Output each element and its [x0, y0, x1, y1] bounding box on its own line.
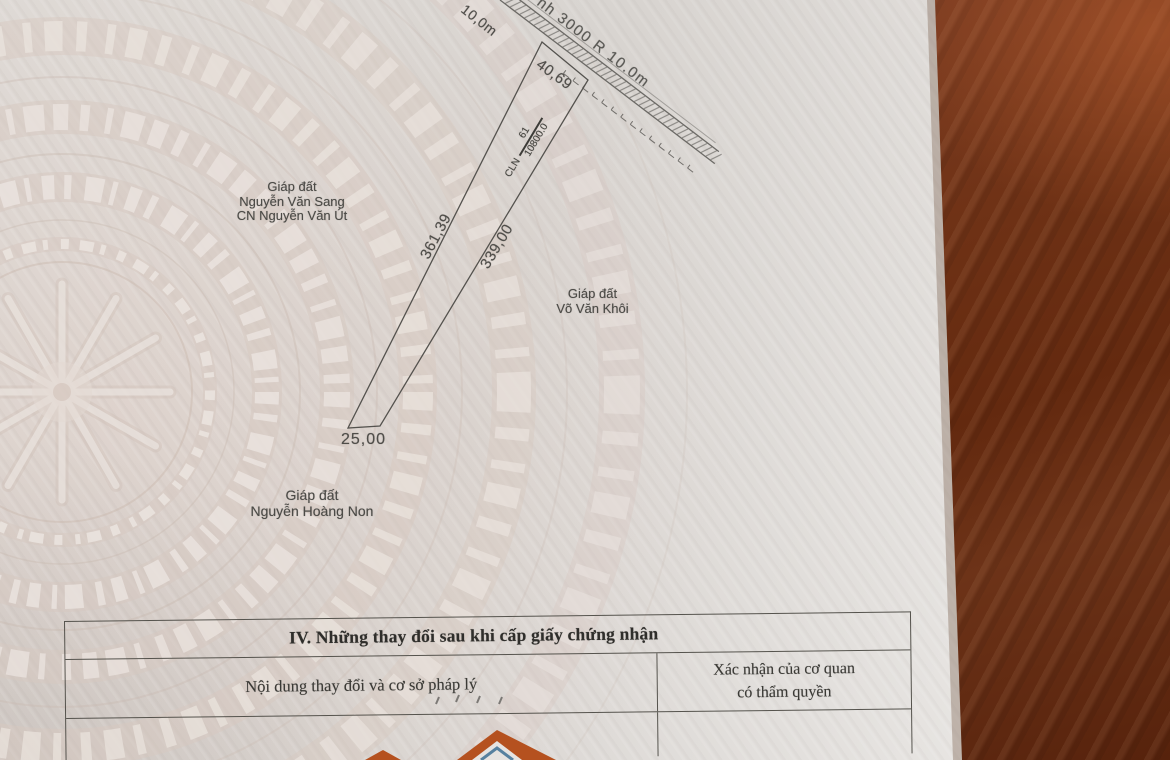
photographed-land-certificate: nh 3000 R 10.0m 10,0m 40,69 CLN 61 10800… — [0, 0, 1170, 760]
logo-left-peak-icon — [365, 750, 401, 760]
